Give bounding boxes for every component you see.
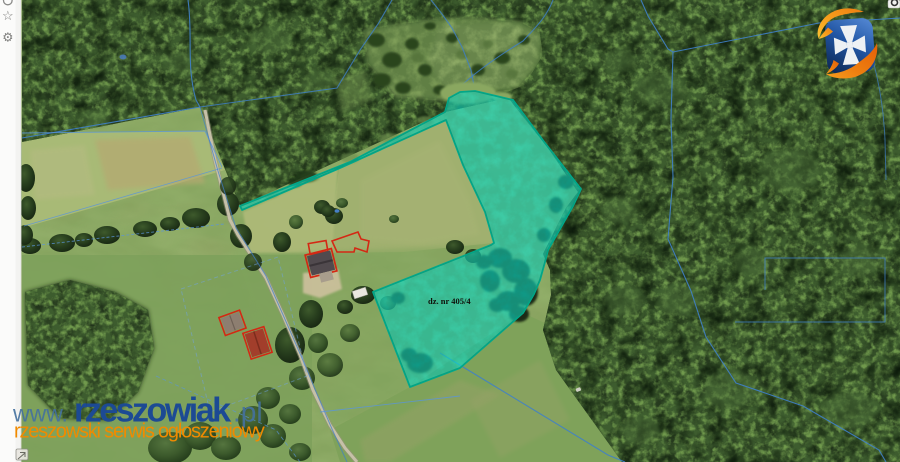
svg-text:⚙: ⚙ (2, 31, 13, 45)
svg-text:☆: ☆ (2, 8, 14, 23)
svg-text:dz. nr 405/4: dz. nr 405/4 (428, 296, 471, 306)
svg-text:rzeszowski serwis ogłoszeniowy: rzeszowski serwis ogłoszeniowy (14, 421, 265, 443)
